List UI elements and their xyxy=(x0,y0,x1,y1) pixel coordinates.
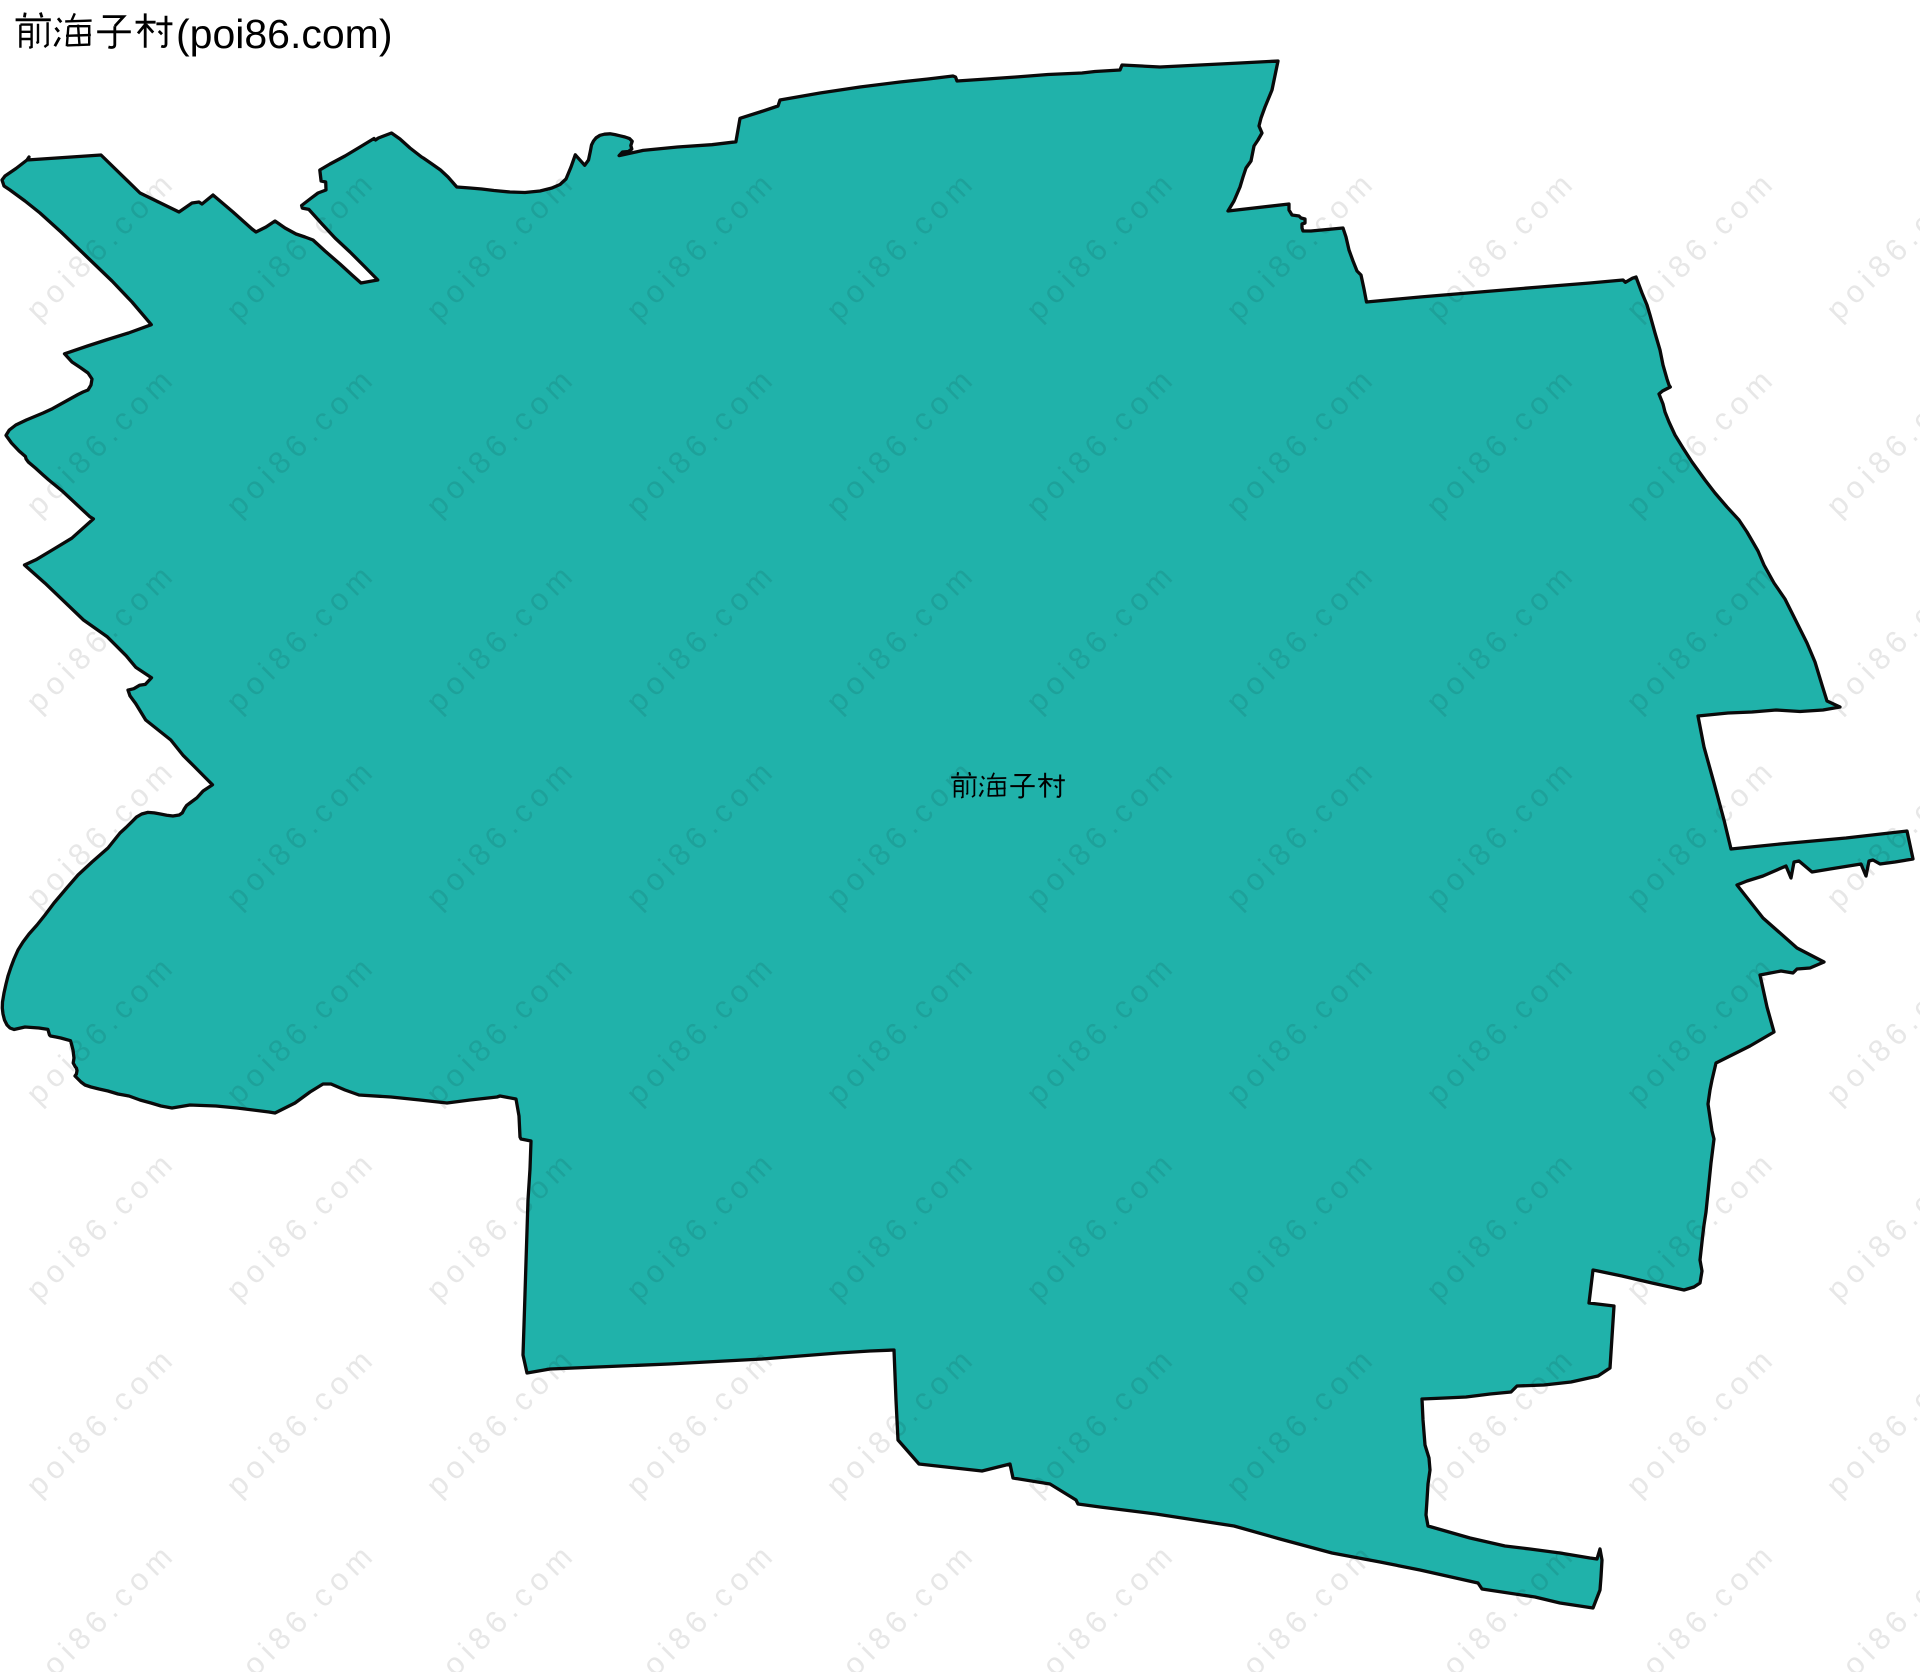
svg-text:(poi86.com): (poi86.com) xyxy=(176,11,392,57)
